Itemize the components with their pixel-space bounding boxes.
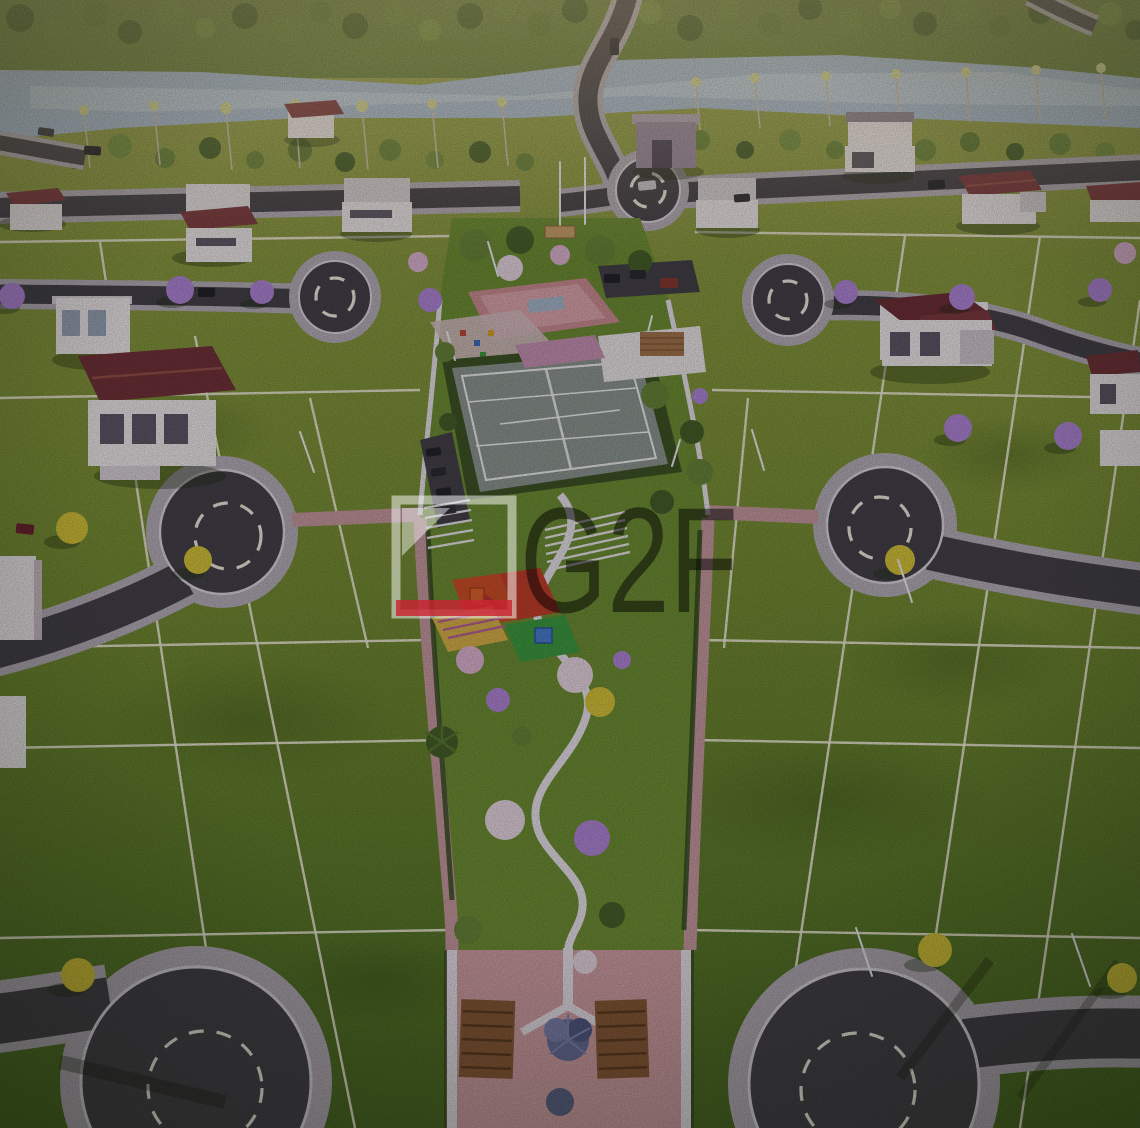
watermark-red-bar [396, 600, 512, 616]
watermark-text: G2F [520, 476, 738, 644]
aerial-masterplan-render: G2F [0, 0, 1140, 1128]
aerial-render: G2F [0, 0, 1140, 1128]
